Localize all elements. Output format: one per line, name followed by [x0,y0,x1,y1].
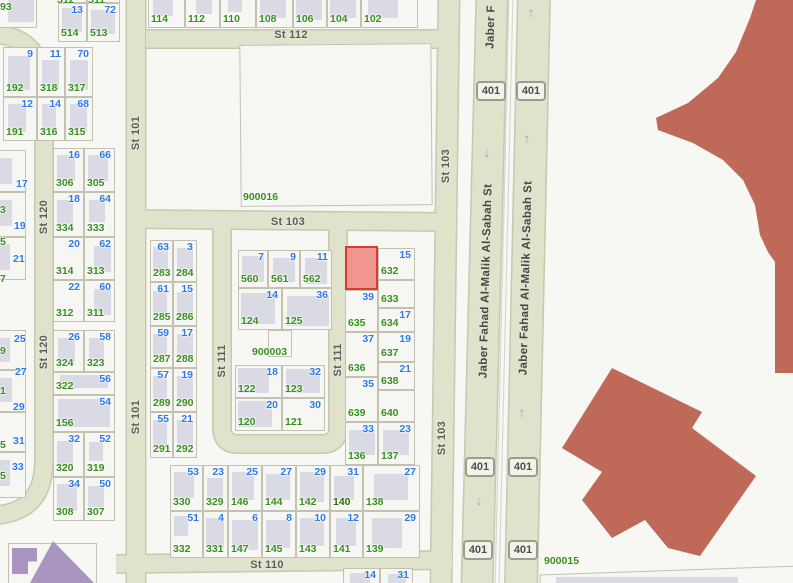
route-401-shield: 401 [516,81,546,101]
oneway-up-arrow-icon: ↑ [528,4,535,20]
highway-name-label: Jaber Fahad Al-Malik Al-Sabah St [517,181,534,376]
route-401-shield: 401 [463,540,493,560]
selected-parcel-631[interactable] [345,246,378,290]
street-label-st-103: St 103 [436,421,448,455]
route-401-shield: 401 [476,81,506,101]
street-label-st-101: St 101 [130,400,142,434]
street-label-st-103: St 103 [440,149,452,183]
route-401-shield: 401 [465,457,495,477]
street-label-st-103: St 103 [271,216,305,228]
oneway-up-arrow-icon: ↑ [519,404,526,420]
street-label-st-120: St 120 [38,335,50,369]
route-401-shield: 401 [508,540,538,560]
oneway-down-arrow-icon: ↓ [476,492,483,508]
street-label-st-111: St 111 [332,344,344,377]
oneway-up-arrow-icon: ↑ [524,130,531,146]
highway-name-label-partial: Jaber F [484,5,497,49]
street-label-st-112: St 112 [274,29,308,41]
street-label-st-111: St 111 [216,345,228,378]
oneway-down-arrow-icon: ↓ [484,144,491,160]
route-401-shield: 401 [508,457,538,477]
street-label-st-110: St 110 [250,559,284,571]
map-canvas[interactable]: 5141351372114112110108106104102900016192… [0,0,793,583]
highway-name-label: Jaber Fahad Al-Malik Al-Sabah St [477,184,494,379]
street-label-st-120: St 120 [38,200,50,234]
street-label-st-101: St 101 [130,116,142,150]
